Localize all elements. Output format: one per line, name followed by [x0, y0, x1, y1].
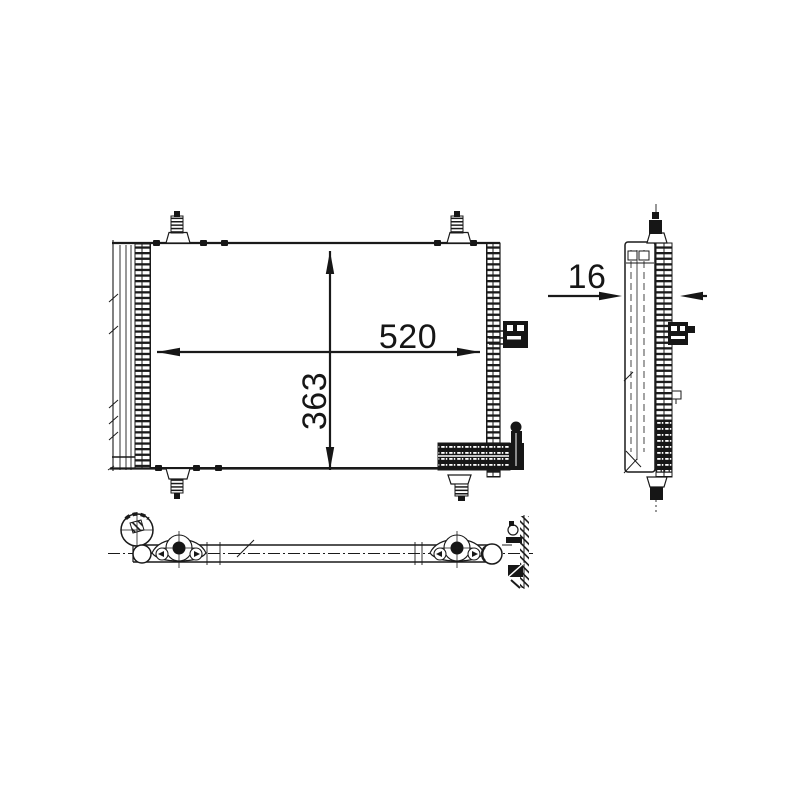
side-small-bracket [672, 391, 681, 399]
core-profile [656, 243, 672, 477]
right-tank [487, 243, 500, 477]
condenser-technical-drawing: 520 363 [0, 0, 800, 800]
width-dimension-label: 520 [379, 318, 437, 356]
front-view: 520 363 [108, 211, 528, 501]
depth-dimension-label: 16 [568, 258, 607, 296]
service-valve [511, 422, 522, 433]
height-dimension-label: 363 [296, 372, 334, 430]
drawing-canvas: 520 363 [0, 0, 800, 800]
receiver-drier-profile [624, 242, 655, 473]
pipe-fitting-plan [482, 544, 502, 564]
